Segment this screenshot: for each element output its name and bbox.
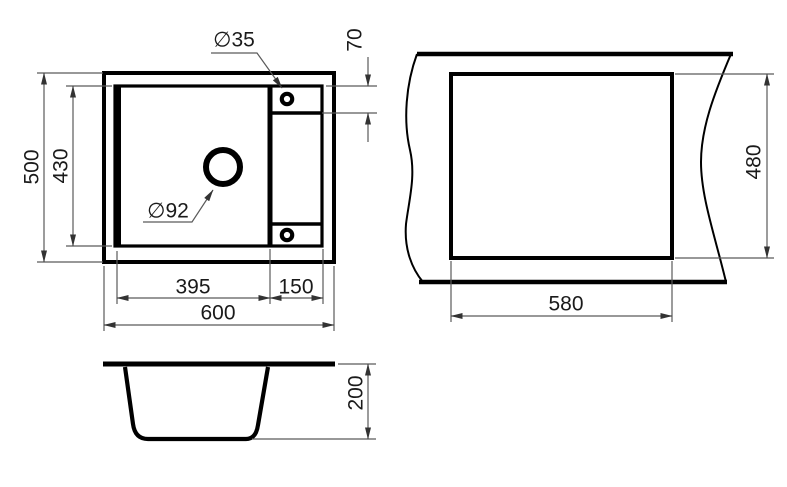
dim-cutout-depth: 480 (675, 74, 774, 258)
dim-label-500: 500 (21, 149, 44, 184)
dim-label-600: 600 (200, 302, 235, 325)
dim-label-395: 395 (175, 276, 210, 299)
drain-hole (206, 150, 240, 184)
break-line-left (406, 54, 423, 282)
break-line-right (701, 54, 731, 282)
dim-label-580: 580 (548, 293, 583, 316)
drawing-canvas: 500 430 395 150 600 (0, 0, 787, 487)
cutout-view: 480 580 (406, 54, 774, 322)
dim-label-200: 200 (345, 375, 368, 410)
dim-tap-hole-offset: 70 (322, 28, 377, 142)
leader-drain-diameter: ∅92 (143, 190, 213, 223)
tap-hole-top (282, 94, 292, 104)
leader-tap-hole-diameter: ∅35 (211, 29, 282, 89)
section-view: 200 (103, 364, 376, 439)
bowl-profile (125, 367, 268, 439)
cutout-outline (451, 74, 672, 258)
dim-label-d92: ∅92 (147, 200, 189, 223)
dim-label-430: 430 (50, 148, 73, 183)
dim-label-480: 480 (743, 144, 766, 179)
dim-cutout-width: 580 (451, 261, 672, 322)
sink-outer-outline (104, 73, 334, 262)
dim-label-70: 70 (344, 28, 367, 51)
tap-hole-bottom (282, 230, 292, 240)
dim-label-150: 150 (278, 276, 313, 299)
plan-view: 500 430 395 150 600 (21, 28, 378, 331)
dim-bowl-width: 395 150 (117, 249, 323, 304)
dim-label-d35: ∅35 (213, 29, 255, 52)
dim-bowl-height: 200 (252, 364, 376, 439)
sink-technical-drawing: 500 430 395 150 600 (0, 0, 787, 487)
